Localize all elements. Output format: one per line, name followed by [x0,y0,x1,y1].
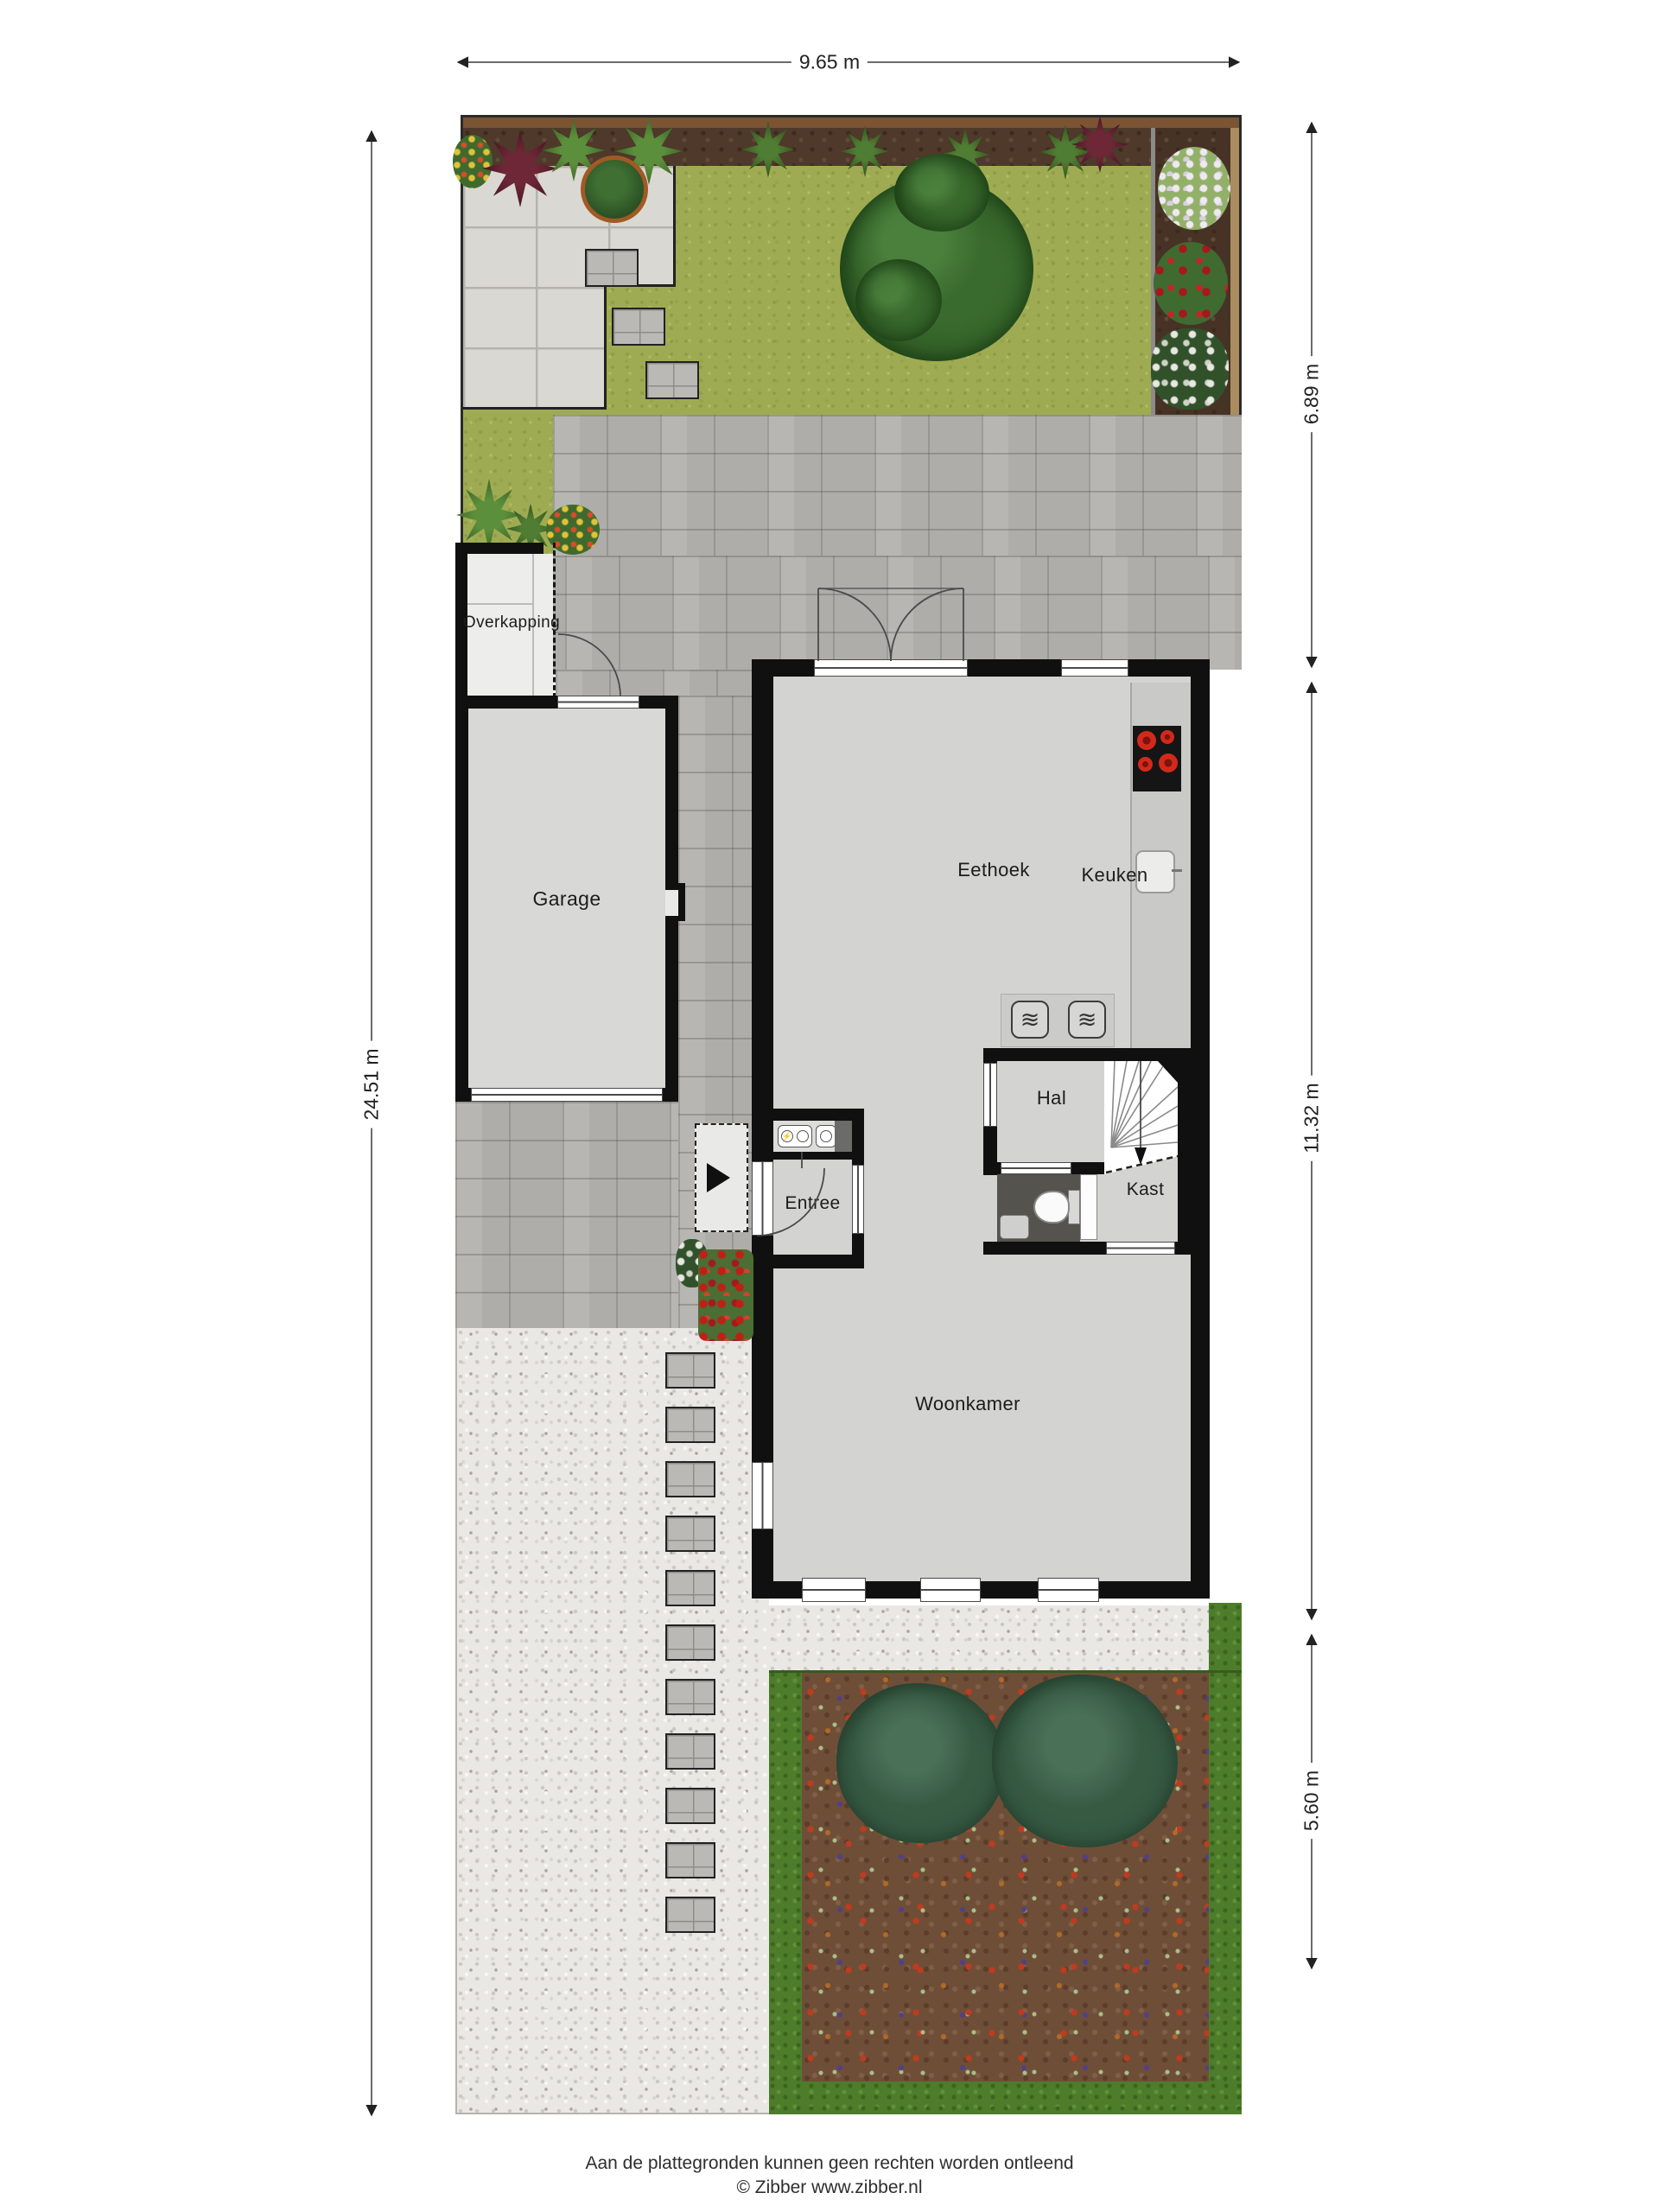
door-arcs [558,588,963,1236]
footer-disclaimer: Aan de plattegronden kunnen geen rechten… [0,2153,1659,2174]
dim-right-garden: 6.89 m [1300,356,1324,432]
floorplan-page: Overkapping Garage [0,0,1659,2212]
dim-right-house: 11.32 m [1300,1075,1324,1160]
dim-right-front: 5.60 m [1300,1763,1324,1839]
dimension-overlay [0,0,1659,2212]
dim-top-width: 9.65 m [791,51,868,74]
dim-left-height: 24.51 m [360,1040,384,1128]
footer-copyright: © Zibber www.zibber.nl [0,2177,1659,2198]
